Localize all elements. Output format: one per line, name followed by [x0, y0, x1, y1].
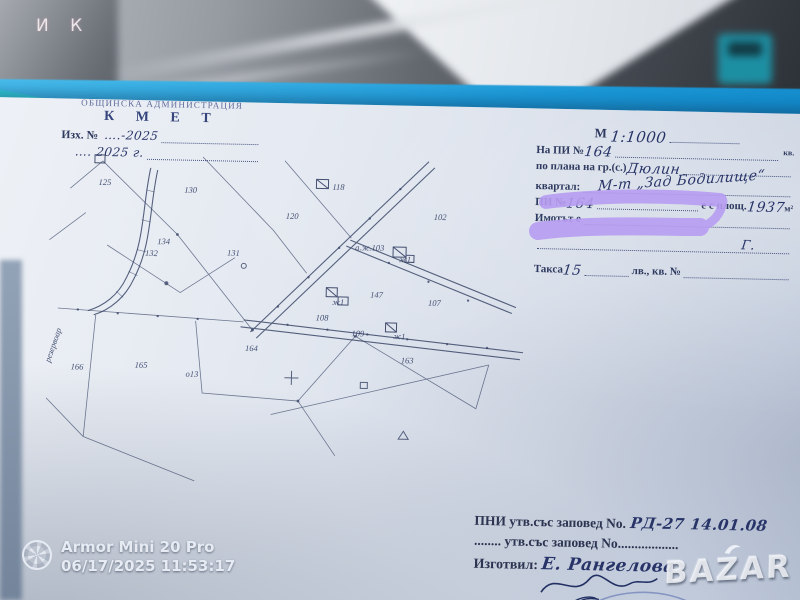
map-parcel-label: ж1: [399, 254, 411, 264]
taksa-label: Такса: [534, 263, 563, 276]
dotted-line: [615, 147, 778, 161]
dotted-line: [161, 132, 259, 145]
map-parcel-label: 131: [227, 248, 240, 258]
camera-datetime: 06/17/2025 11:53:17: [61, 557, 235, 576]
shutter-icon: [22, 540, 52, 570]
map-parcel-label: ж1: [393, 331, 405, 341]
bazar-watermark: BAZAR: [663, 549, 792, 592]
camera-model: Armor Mini 20 Pro: [61, 538, 235, 557]
cadastral-map: 125130118120102134132131а.ж.103ж1147107ж…: [44, 148, 531, 508]
map-parcel-label: 165: [135, 360, 148, 370]
document-content: ОБЩИНСКА АДМИНИСТРАЦИЯ К М Е Т Изх. № ….…: [0, 0, 800, 600]
map-parcel-label: 163: [401, 355, 414, 365]
dotted-line: [585, 265, 629, 277]
signature: [535, 562, 666, 600]
plan-label: по плана на гр.(с.): [536, 160, 627, 174]
map-parcel-label: о13: [185, 369, 198, 379]
pi-value: 164: [583, 147, 612, 158]
scale-label: М: [594, 125, 607, 141]
map-parcel-label: а.ж.103: [355, 242, 384, 253]
map-parcel-label: 118: [332, 182, 344, 192]
prepared-by-label: Изготвил:: [473, 557, 538, 574]
pni-label: ПНИ утв.със заповед No.: [474, 513, 626, 532]
map-parcel-label: 132: [145, 248, 158, 258]
photo-of-document: ОБЩИНСКА АДМИНИСТРАЦИЯ К М Е Т Изх. № ….…: [0, 0, 800, 600]
map-parcel-label: 108: [316, 312, 329, 322]
stamp-title: К М Е Т: [62, 108, 262, 128]
author-watermark: И К: [36, 16, 90, 36]
map-parcel-label: 120: [286, 211, 299, 221]
map-survey-points: [75, 181, 492, 406]
map-parcel-label: 109: [351, 328, 364, 338]
outgoing-number-value: ….-2025: [103, 128, 159, 143]
map-symbols: [238, 263, 412, 439]
purple-redaction-scribble: [528, 186, 778, 258]
order-line2: ........ утв.със заповед No.............…: [474, 533, 679, 553]
pi-label: На ПИ №: [536, 144, 584, 157]
pni-order-value: РД-27 14.01.08: [629, 514, 768, 535]
dotted-line: [684, 267, 789, 280]
kv-suffix: кв.: [783, 148, 794, 157]
area-unit: м²: [784, 203, 793, 213]
scale-value: 1:1000: [610, 132, 667, 143]
map-parcel-label: 125: [98, 177, 111, 187]
taksa-suffix: лв., кв. №: [632, 265, 681, 278]
map-parcel-boundaries: [44, 154, 493, 487]
taksa-value: 15: [562, 266, 582, 276]
outgoing-number-label: Изх. №: [61, 129, 98, 142]
bird-icon: [722, 541, 742, 556]
map-parcel-label: 164: [245, 343, 258, 353]
map-parcel-label: ж1: [332, 297, 344, 307]
map-parcel-label: 130: [184, 185, 197, 195]
map-parcel-label: 107: [428, 298, 441, 308]
map-parcel-label: 166: [71, 361, 84, 371]
dotted-line: [670, 132, 740, 144]
camera-watermark: Armor Mini 20 Pro 06/17/2025 11:53:17: [22, 538, 235, 576]
map-parcel-label: 102: [434, 212, 447, 222]
map-parcel-label: 147: [370, 290, 383, 300]
map-parcel-label: 134: [157, 236, 170, 246]
map-linework: [44, 148, 531, 508]
